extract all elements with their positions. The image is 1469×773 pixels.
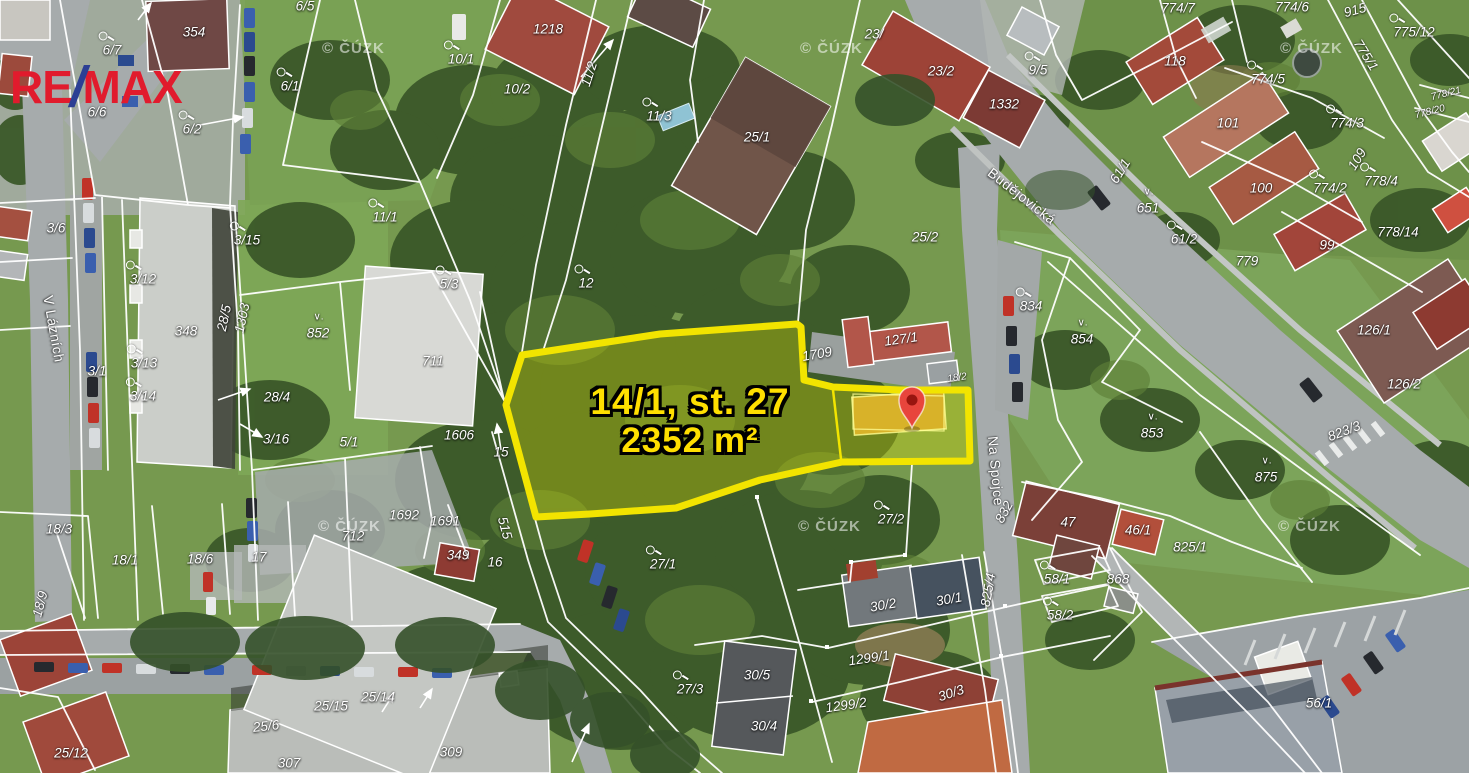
logo-re-text: RE: [10, 61, 72, 113]
parcel-size-text: 2352 m²: [590, 423, 789, 460]
logo-slash-icon: /: [70, 55, 85, 118]
remax-logo: RE/MAX: [10, 56, 182, 112]
satellite-map: BudějovickáNa SpojceV Lázních6/73546/56/…: [0, 0, 1469, 773]
logo-max-text: MAX: [83, 61, 182, 113]
parcel-number-text: 14/1, st. 27: [590, 383, 789, 422]
parcel-area-label: 14/1, st. 27 2352 m²: [590, 383, 789, 460]
